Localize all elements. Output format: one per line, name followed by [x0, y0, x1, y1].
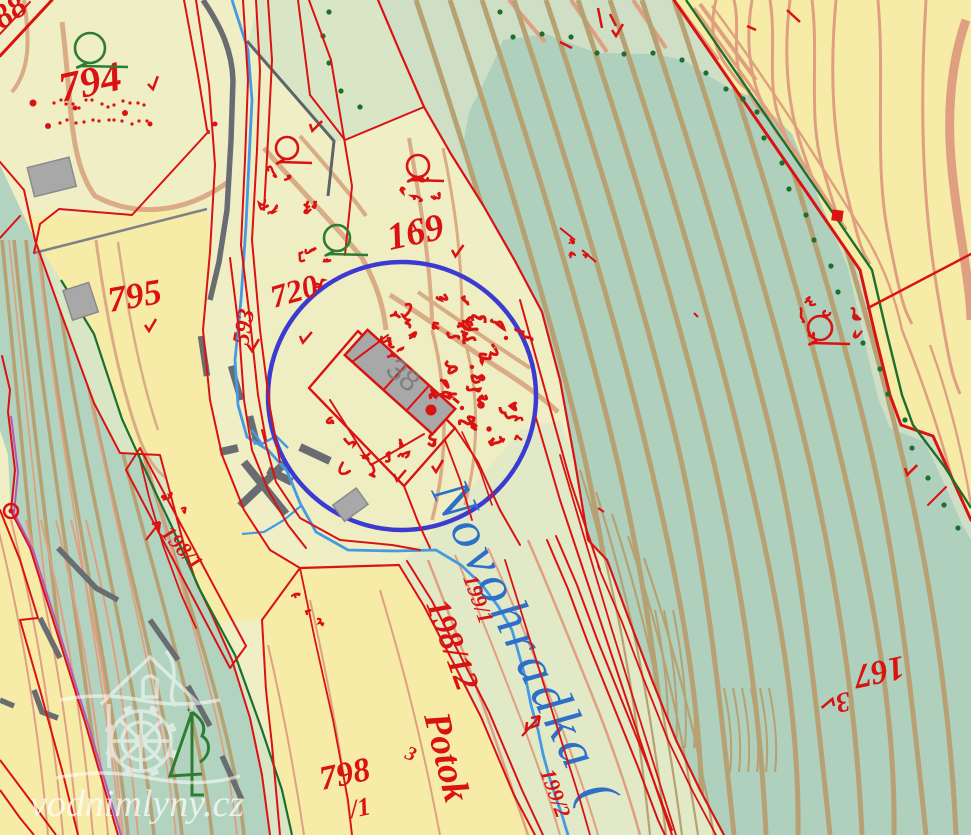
svg-text:vodnimlyny.cz: vodnimlyny.cz: [30, 783, 244, 825]
